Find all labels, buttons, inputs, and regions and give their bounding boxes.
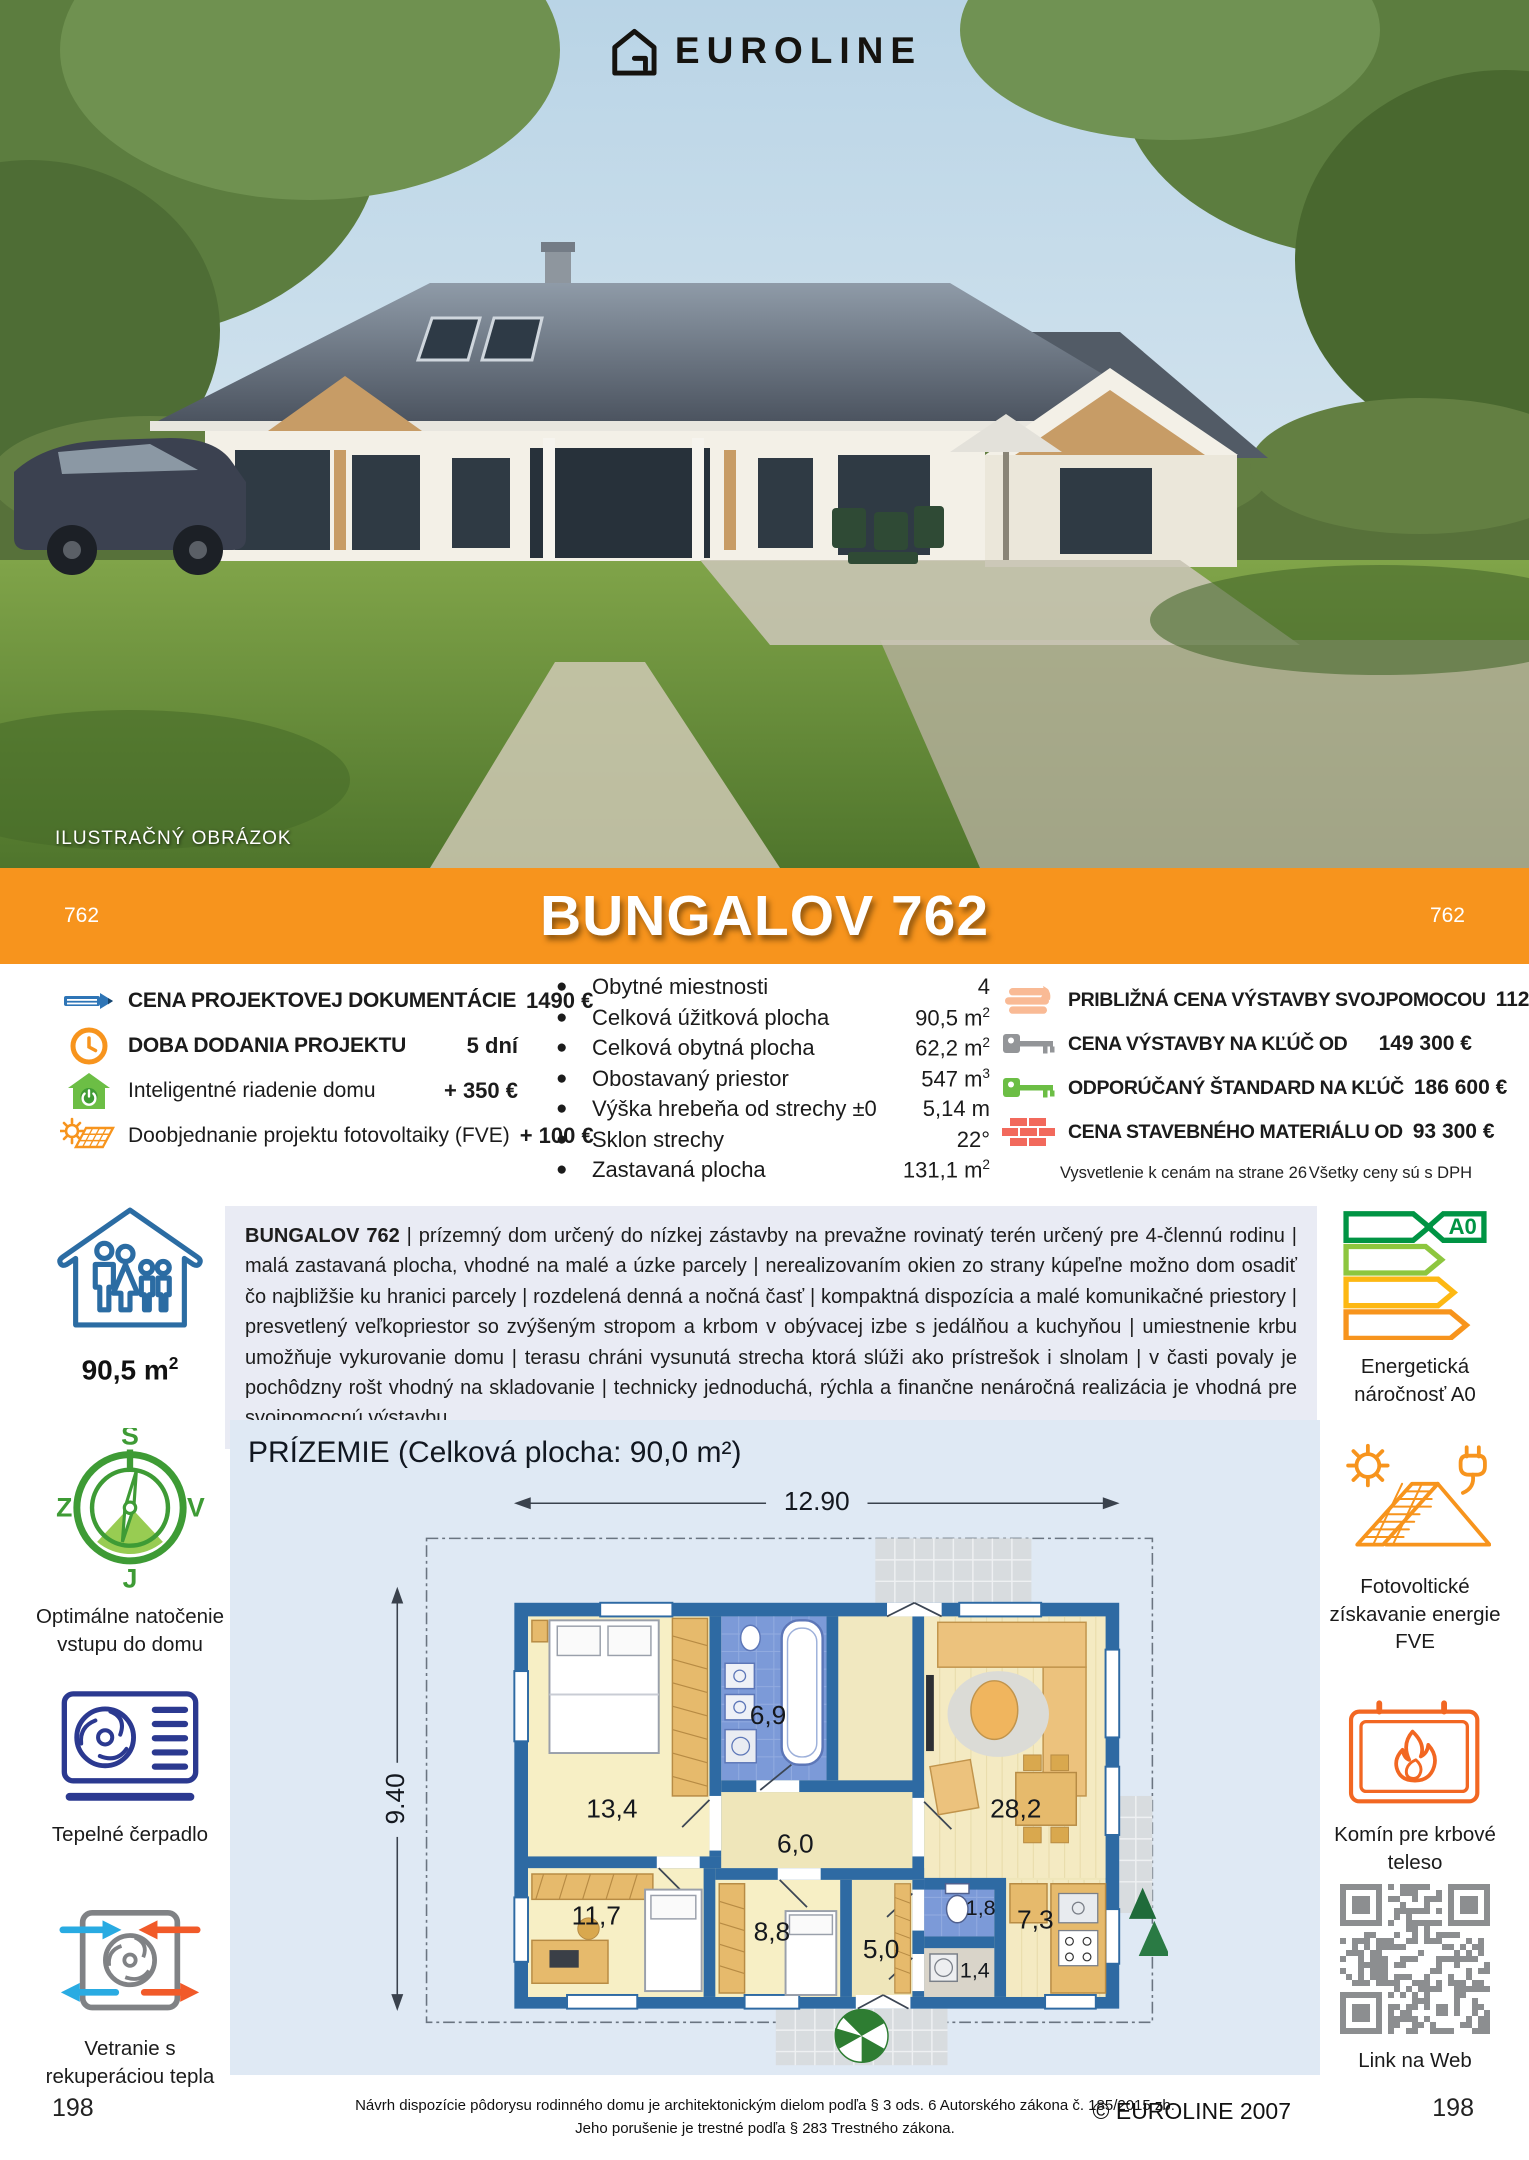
floorplan-title: PRÍZEMIE (Celková plocha: 90,0 m²) (230, 1420, 1320, 1470)
usable-area-value: 90,5 m2 (40, 1353, 220, 1386)
spec-label: Zastavaná plocha (592, 1157, 766, 1183)
euroline-house-icon (607, 24, 661, 78)
floorplan-drawing: 12.90 9.40 (368, 1474, 1168, 2071)
heat-pump-icon (59, 1688, 201, 1808)
model-number-right: 762 (1430, 868, 1465, 964)
plan-height-dimension: 9.40 (380, 1773, 410, 1824)
compass-block: S Z V J Optimálne natočenie vstupu do do… (35, 1428, 225, 1658)
page-number-right: 198 (1432, 2094, 1474, 2123)
fireplace-label: Komín pre krbové teleso (1320, 1821, 1510, 1876)
build-pricing-rows: PRIBLIŽNÁ CENA VÝSTAVBY SVOJPOMOCOU112 0… (1000, 978, 1472, 1154)
fireplace-chimney-icon (1344, 1700, 1486, 1808)
bullet-icon: ● (556, 1068, 592, 1090)
room-area-living: 28,2 (990, 1793, 1041, 1823)
compass-north: S (121, 1428, 139, 1450)
title-banner: 762 BUNGALOV 762 762 (0, 868, 1529, 964)
pricing_right-row: CENA VÝSTAVBY NA KĽÚČ OD149 300 € (1000, 1022, 1472, 1066)
spec-row: ●Obostavaný priestor547 m3 (556, 1064, 990, 1095)
bullet-icon: ● (556, 1007, 592, 1029)
house-family-icon (54, 1192, 206, 1340)
energy-badge: A0 (1449, 1214, 1477, 1239)
page-number-left: 198 (52, 2094, 94, 2123)
bullet-icon: ● (556, 1037, 592, 1059)
spec-row: ●Sklon strechy22° (556, 1125, 990, 1156)
brand-name: EUROLINE (675, 30, 922, 72)
pricing_right-row: CENA STAVEBNÉHO MATERIÁLU OD93 300 € (1000, 1110, 1472, 1154)
spec-label: Sklon strechy (592, 1127, 724, 1153)
room-area-hall: 6,0 (777, 1829, 814, 1859)
pricing_right-value: 186 600 € (1414, 1076, 1507, 1100)
energy-label-icon: A0 (1339, 1206, 1491, 1340)
pricing_left-row: DOBA DODANIA PROJEKTU5 dní (60, 1023, 518, 1068)
room-area-bedroom1: 13,4 (586, 1793, 637, 1823)
qr-code (1340, 1884, 1490, 2034)
spec-row: ●Celková úžitková plocha90,5 m2 (556, 1003, 990, 1034)
room-area-tech: 1,4 (960, 1958, 990, 1982)
pricing_left-label: Inteligentné riadenie domu (128, 1079, 376, 1103)
floorplan-panel: PRÍZEMIE (Celková plocha: 90,0 m²) 12.90… (230, 1420, 1320, 2075)
spec-value: 547 m3 (921, 1066, 990, 1092)
page-title: BUNGALOV 762 (0, 868, 1529, 964)
house-photo-illustration (0, 0, 1529, 868)
energy-class-label: Energetická náročnosť A0 (1320, 1353, 1510, 1408)
room-area-kitchen: 7,3 (1017, 1905, 1054, 1935)
spec-row: ●Celková obytná plocha62,2 m2 (556, 1033, 990, 1064)
heatpump-block: Tepelné čerpadlo (35, 1688, 225, 1849)
pricing_right-value: 149 300 € (1379, 1032, 1472, 1056)
copyright: © EUROLINE 2007 (1093, 2098, 1291, 2125)
photovoltaic-block: Fotovoltické získavanie energie FVE (1320, 1438, 1510, 1656)
build-pricing-list: PRIBLIŽNÁ CENA VÝSTAVBY SVOJPOMOCOU112 0… (1000, 978, 1472, 1183)
pricing_right-label: ODPORÚČANÝ ŠTANDARD NA KĽÚČ (1068, 1077, 1404, 1100)
room-area-bathroom: 6,9 (750, 1700, 787, 1730)
compass-icon: S Z V J (54, 1428, 206, 1590)
project-pricing-list: CENA PROJEKTOVEJ DOKUMENTÁCIE1490 €DOBA … (60, 978, 518, 1158)
clock-icon (60, 1026, 118, 1066)
bullet-icon: ● (556, 1129, 592, 1151)
house-photo: EUROLINE ILUSTRAČNÝ OBRÁZOK (0, 0, 1529, 868)
key-gray-icon (1000, 1031, 1058, 1057)
pricing_right-row: ODPORÚČANÝ ŠTANDARD NA KĽÚČ186 600 € (1000, 1066, 1472, 1110)
compass-east: V (187, 1493, 205, 1523)
plan-width-dimension: 12.90 (784, 1486, 850, 1516)
heatpump-label: Tepelné čerpadlo (35, 1821, 225, 1849)
room-area-wc: 1,8 (966, 1896, 996, 1920)
description-lead: BUNGALOV 762 (245, 1225, 400, 1247)
pricing_left-value: + 350 € (444, 1078, 518, 1104)
room-area-bedroom2: 11,7 (572, 1901, 621, 1931)
key-green-icon (1000, 1075, 1058, 1101)
bullet-icon: ● (556, 1098, 592, 1120)
plan-parasol (835, 2010, 888, 2063)
compass-west: Z (56, 1493, 72, 1523)
ventilation-block: Vetranie s rekuperáciou tepla (35, 1904, 225, 2090)
photo-caption: ILUSTRAČNÝ OBRÁZOK (55, 828, 292, 850)
spec-label: Celková obytná plocha (592, 1035, 815, 1061)
spec-value: 5,14 m (923, 1096, 990, 1122)
compass-south: J (123, 1563, 138, 1590)
pricing_left-label: DOBA DODANIA PROJEKTU (128, 1034, 406, 1058)
spec-label: Obostavaný priestor (592, 1066, 789, 1092)
photovoltaic-icon (1339, 1438, 1491, 1560)
pricing_right-label: CENA STAVEBNÉHO MATERIÁLU OD (1068, 1121, 1403, 1144)
solar-panel-icon (60, 1116, 118, 1156)
compass-label: Optimálne natočenie vstupu do domu (35, 1603, 225, 1658)
legal-line-2: Jeho porušenie je trestné podľa § 283 Tr… (300, 2117, 1230, 2140)
spec-label: Celková úžitková plocha (592, 1005, 829, 1031)
spec-value: 4 (978, 974, 990, 1000)
spec-value: 131,1 m2 (903, 1157, 990, 1183)
pricing_left-label: CENA PROJEKTOVEJ DOKUMENTÁCIE (128, 989, 516, 1013)
spec-row: ●Obytné miestnosti4 (556, 972, 990, 1003)
pencil-icon (60, 988, 118, 1014)
pricing_right-value: 112 000 € (1496, 988, 1529, 1012)
pricing-note-left: Vysvetlenie k cenám na strane 26 (1060, 1164, 1307, 1183)
brand-logo: EUROLINE (607, 24, 922, 78)
pricing_right-label: PRIBLIŽNÁ CENA VÝSTAVBY SVOJPOMOCOU (1068, 989, 1486, 1012)
house-description: BUNGALOV 762 | prízemný dom určený do ní… (225, 1206, 1317, 1449)
legal-text: Návrh dispozície pôdorysu rodinného domu… (300, 2094, 1230, 2141)
pricing_right-value: 93 300 € (1413, 1120, 1495, 1144)
spec-row: ●Zastavaná plocha131,1 m2 (556, 1155, 990, 1186)
pricing_left-row: CENA PROJEKTOVEJ DOKUMENTÁCIE1490 € (60, 978, 518, 1023)
ventilation-recuperation-icon (59, 1904, 201, 2022)
catalog-page: EUROLINE ILUSTRAČNÝ OBRÁZOK 762 BUNGALOV… (0, 0, 1529, 2160)
spec-value: 90,5 m2 (915, 1005, 990, 1031)
fireplace-block: Komín pre krbové teleso (1320, 1700, 1510, 1876)
pricing_left-row: Inteligentné riadenie domu+ 350 € (60, 1068, 518, 1113)
qr-label: Link na Web (1320, 2047, 1510, 2075)
spec-label: Výška hrebeňa od strechy ±0 (592, 1096, 877, 1122)
bullet-icon: ● (556, 1159, 592, 1181)
pricing-notes: Vysvetlenie k cenám na strane 26 Všetky … (1000, 1164, 1472, 1183)
pricing_left-value: 5 dní (467, 1033, 518, 1059)
spec-value: 22° (957, 1127, 990, 1153)
qr-block: Link na Web (1320, 1884, 1510, 2075)
bricks-icon (1000, 1117, 1058, 1147)
spec-row: ●Výška hrebeňa od strechy ±05,14 m (556, 1094, 990, 1125)
house-capacity-block: 90,5 m2 (40, 1192, 220, 1386)
room-area-corridor: 5,0 (863, 1934, 900, 1964)
pricing_left-label: Doobjednanie projektu fotovoltaiky (FVE) (128, 1124, 510, 1148)
bullet-icon: ● (556, 976, 592, 998)
pricing_right-row: PRIBLIŽNÁ CENA VÝSTAVBY SVOJPOMOCOU112 0… (1000, 978, 1472, 1022)
hand-icon (1000, 981, 1058, 1019)
smart-home-icon (60, 1071, 118, 1111)
pricing-note-right: Všetky ceny sú s DPH (1309, 1164, 1472, 1183)
specs-list: ●Obytné miestnosti4●Celková úžitková plo… (556, 972, 990, 1186)
ventilation-label: Vetranie s rekuperáciou tepla (35, 2035, 225, 2090)
room-area-bedroom3: 8,8 (754, 1916, 791, 1946)
legal-line-1: Návrh dispozície pôdorysu rodinného domu… (300, 2094, 1230, 2117)
pricing_left-row: Doobjednanie projektu fotovoltaiky (FVE)… (60, 1113, 518, 1158)
spec-value: 62,2 m2 (915, 1035, 990, 1061)
spec-label: Obytné miestnosti (592, 974, 768, 1000)
photovoltaic-label: Fotovoltické získavanie energie FVE (1320, 1573, 1510, 1656)
energy-class-block: A0 Energetická náročnosť A0 (1320, 1206, 1510, 1408)
pricing_right-label: CENA VÝSTAVBY NA KĽÚČ OD (1068, 1033, 1347, 1056)
description-body: | prízemný dom určený do nízkej zástavby… (245, 1225, 1297, 1429)
